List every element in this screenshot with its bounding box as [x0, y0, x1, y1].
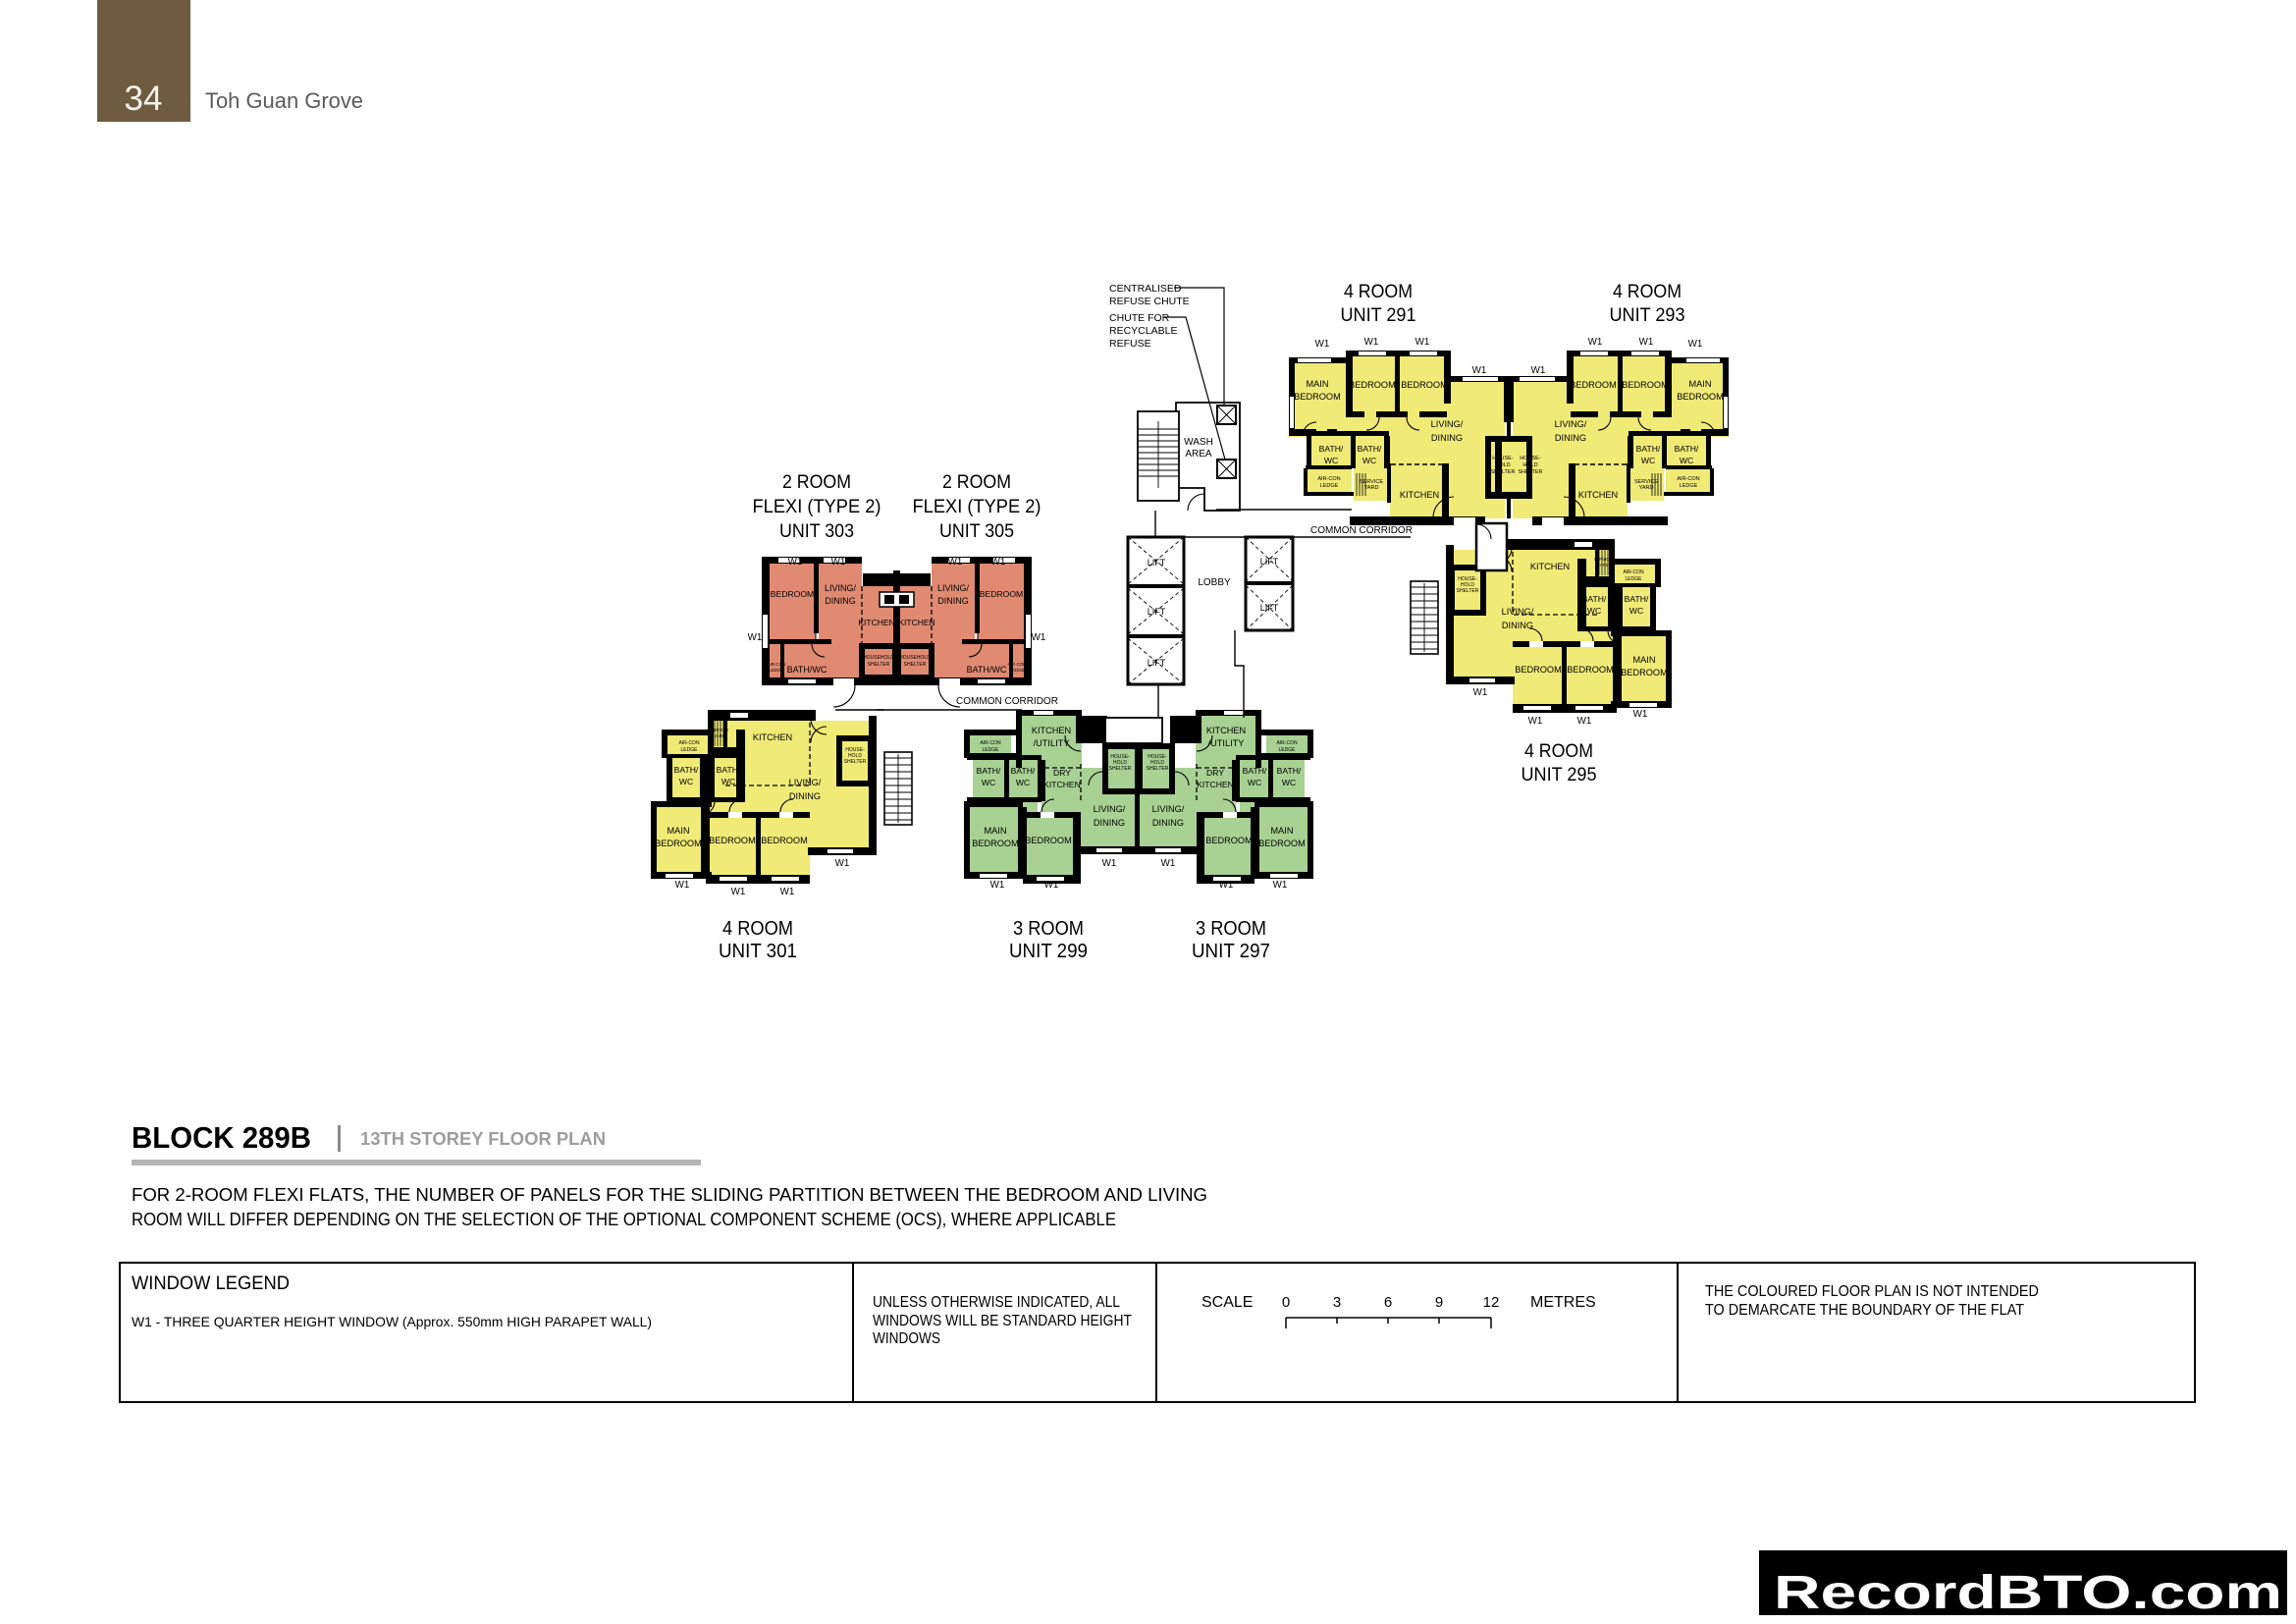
svg-text:W1: W1: [1472, 365, 1487, 376]
svg-text:KITCHEN: KITCHEN: [1206, 726, 1246, 735]
svg-text:BATH/: BATH/: [1358, 444, 1382, 454]
svg-text:6: 6: [1384, 1294, 1392, 1311]
svg-text:4 ROOM: 4 ROOM: [722, 918, 793, 940]
svg-text:2 ROOM: 2 ROOM: [942, 472, 1011, 493]
svg-text:LEDGE: LEDGE: [1626, 576, 1643, 582]
svg-text:13TH STOREY FLOOR PLAN: 13TH STOREY FLOOR PLAN: [360, 1129, 606, 1149]
svg-text:/UTILITY: /UTILITY: [1034, 738, 1070, 748]
svg-text:BEDROOM: BEDROOM: [1025, 836, 1071, 845]
svg-text:UNIT 295: UNIT 295: [1522, 765, 1597, 785]
svg-text:W1: W1: [1315, 339, 1330, 350]
svg-text:W1: W1: [1633, 709, 1648, 720]
svg-text:4 ROOM: 4 ROOM: [1613, 282, 1682, 302]
svg-text:BEDROOM: BEDROOM: [980, 589, 1023, 599]
svg-text:LIFT: LIFT: [1148, 607, 1166, 617]
svg-text:W1: W1: [1688, 339, 1703, 350]
svg-text:UNIT 301: UNIT 301: [719, 941, 797, 962]
svg-text:WC: WC: [679, 777, 693, 786]
svg-text:W1: W1: [1044, 880, 1059, 891]
svg-text:DINING: DINING: [1431, 433, 1463, 443]
svg-text:KITCHEN: KITCHEN: [1578, 490, 1618, 500]
svg-text:UNIT 293: UNIT 293: [1610, 305, 1685, 326]
svg-text:W1 - THREE QUARTER HEIGHT WIND: W1 - THREE QUARTER HEIGHT WINDOW (Approx…: [132, 1314, 652, 1329]
svg-text:REFUSE CHUTE: REFUSE CHUTE: [1109, 296, 1190, 307]
svg-text:BEDROOM: BEDROOM: [1401, 380, 1447, 390]
svg-text:ROOM WILL DIFFER DEPENDING ON: ROOM WILL DIFFER DEPENDING ON THE SELECT…: [132, 1209, 1116, 1229]
svg-text:W1: W1: [675, 880, 690, 891]
svg-text:LOBBY: LOBBY: [1198, 577, 1231, 588]
svg-text:WC: WC: [1282, 778, 1296, 787]
svg-text:MAIN: MAIN: [1307, 379, 1329, 389]
svg-text:LEDGE: LEDGE: [1680, 483, 1698, 489]
svg-text:DINING: DINING: [825, 596, 856, 606]
svg-text:BATH/: BATH/: [1243, 766, 1267, 776]
svg-text:AIR-CON: AIR-CON: [1677, 476, 1699, 482]
svg-text:W1: W1: [1161, 858, 1176, 869]
svg-text:W1: W1: [1531, 365, 1546, 376]
svg-text:BEDROOM: BEDROOM: [1570, 380, 1616, 390]
svg-text:DINING: DINING: [937, 596, 969, 606]
svg-text:W1: W1: [1219, 880, 1234, 891]
svg-text:W1: W1: [1577, 716, 1592, 727]
svg-text:UNLESS OTHERWISE INDICATED, AL: UNLESS OTHERWISE INDICATED, ALL: [873, 1294, 1120, 1311]
svg-text:LIFT: LIFT: [1148, 658, 1166, 668]
svg-text:TO DEMARCATE THE BOUNDARY OF T: TO DEMARCATE THE BOUNDARY OF THE FLAT: [1705, 1302, 2024, 1319]
svg-text:W1: W1: [1588, 337, 1603, 348]
svg-text:AIR-CON: AIR-CON: [1317, 476, 1340, 482]
svg-text:DINING: DINING: [789, 791, 821, 801]
svg-text:W1: W1: [948, 557, 963, 568]
svg-text:AIR-CON: AIR-CON: [1623, 569, 1644, 575]
svg-text:SHELTER: SHELTER: [1457, 588, 1479, 594]
svg-text:SCALE: SCALE: [1201, 1294, 1253, 1311]
svg-text:LIVING/: LIVING/: [1152, 804, 1185, 814]
svg-text:CHUTE FOR: CHUTE FOR: [1109, 312, 1170, 324]
svg-text:MAIN: MAIN: [1689, 379, 1712, 389]
svg-text:KITCHEN: KITCHEN: [1530, 562, 1570, 571]
svg-text:SHELTER: SHELTER: [904, 662, 927, 668]
svg-text:LIVING/: LIVING/: [937, 583, 970, 593]
svg-text:BEDROOM: BEDROOM: [1258, 839, 1305, 848]
svg-text:MAIN: MAIN: [1271, 826, 1294, 836]
svg-text:34: 34: [125, 80, 163, 118]
svg-text:SHELTER: SHELTER: [1519, 469, 1543, 475]
svg-text:W1: W1: [835, 858, 850, 869]
svg-text:LEDGE: LEDGE: [983, 747, 1000, 753]
svg-text:BEDROOM: BEDROOM: [1621, 668, 1667, 677]
svg-text:MAIN: MAIN: [1633, 655, 1656, 665]
svg-text:BLOCK 289B: BLOCK 289B: [132, 1120, 311, 1155]
svg-text:HOLD: HOLD: [1495, 462, 1510, 468]
svg-text:Toh Guan Grove: Toh Guan Grove: [205, 88, 363, 113]
svg-text:4 ROOM: 4 ROOM: [1344, 282, 1413, 302]
svg-text:BEDROOM: BEDROOM: [972, 839, 1018, 848]
svg-text:BATH/: BATH/: [1675, 444, 1699, 454]
svg-text:BEDROOM: BEDROOM: [1294, 392, 1340, 402]
svg-text:HOUSEHOLD: HOUSEHOLD: [899, 655, 931, 661]
svg-text:LIFT: LIFT: [1260, 557, 1279, 567]
svg-text:REFUSE: REFUSE: [1109, 338, 1151, 350]
svg-text:2 ROOM: 2 ROOM: [782, 472, 851, 493]
svg-text:DINING: DINING: [1502, 621, 1533, 630]
svg-text:3 ROOM: 3 ROOM: [1196, 918, 1266, 940]
svg-text:W1: W1: [831, 557, 846, 568]
svg-text:LEDGE: LEDGE: [1009, 668, 1024, 673]
svg-text:BEDROOM: BEDROOM: [761, 836, 807, 845]
svg-text:BEDROOM: BEDROOM: [771, 589, 814, 599]
svg-text:UNIT 299: UNIT 299: [1009, 941, 1088, 962]
svg-text:HOLD: HOLD: [1522, 462, 1537, 468]
svg-text:LEDGE: LEDGE: [769, 668, 783, 673]
svg-text:SHELTER: SHELTER: [1147, 766, 1169, 772]
svg-text:WC: WC: [721, 777, 735, 786]
svg-text:BATH/: BATH/: [674, 765, 699, 775]
svg-text:W1: W1: [1364, 337, 1379, 348]
svg-text:0: 0: [1282, 1294, 1290, 1311]
svg-text:RecordBTO.com: RecordBTO.com: [1774, 1567, 2282, 1619]
svg-text:W1: W1: [1102, 858, 1117, 869]
svg-text:LEDGE: LEDGE: [1279, 747, 1297, 753]
svg-text:4 ROOM: 4 ROOM: [1524, 741, 1593, 762]
svg-text:W1: W1: [780, 887, 795, 897]
svg-text:KITCHEN: KITCHEN: [1043, 780, 1081, 789]
svg-text:WC: WC: [1324, 456, 1338, 465]
svg-text:W1: W1: [1639, 337, 1654, 348]
svg-text:W1: W1: [748, 632, 763, 643]
svg-text:BATH/: BATH/: [1011, 766, 1036, 776]
svg-text:WC: WC: [1362, 456, 1376, 465]
svg-text:W1: W1: [1415, 337, 1430, 348]
svg-text:AIR-CON: AIR-CON: [980, 740, 1001, 746]
svg-text:FLEXI (TYPE 2): FLEXI (TYPE 2): [753, 497, 881, 517]
svg-text:UNIT 303: UNIT 303: [779, 521, 854, 542]
svg-text:YARD: YARD: [1364, 485, 1379, 491]
svg-text:LIVING/: LIVING/: [1555, 419, 1587, 429]
svg-text:FLEXI (TYPE 2): FLEXI (TYPE 2): [913, 497, 1041, 517]
svg-text:BATH/: BATH/: [1582, 594, 1607, 604]
svg-text:BATH/: BATH/: [1319, 444, 1344, 454]
svg-text:W1: W1: [1528, 716, 1543, 727]
svg-text:CENTRALISED: CENTRALISED: [1109, 283, 1182, 295]
svg-text:BATH/: BATH/: [717, 765, 741, 775]
svg-text:LIVING/: LIVING/: [789, 778, 822, 787]
svg-text:DRY: DRY: [1053, 768, 1071, 778]
svg-text:DINING: DINING: [1094, 818, 1125, 828]
svg-text:WC: WC: [1641, 456, 1655, 465]
svg-text:YARD: YARD: [1597, 563, 1608, 568]
svg-text:DRY: DRY: [1206, 768, 1224, 778]
svg-text:W1: W1: [731, 887, 746, 897]
svg-text:WINDOWS WILL BE STANDARD HEIGH: WINDOWS WILL BE STANDARD HEIGHT: [873, 1313, 1132, 1329]
svg-text:BEDROOM: BEDROOM: [1515, 665, 1561, 675]
svg-text:LIFT: LIFT: [1260, 603, 1279, 613]
svg-text:COMMON CORRIDOR: COMMON CORRIDOR: [956, 696, 1058, 707]
svg-text:BEDROOM: BEDROOM: [1622, 380, 1668, 390]
svg-text:BEDROOM: BEDROOM: [1205, 836, 1252, 845]
svg-text:UNIT 291: UNIT 291: [1341, 305, 1416, 326]
svg-text:RECYCLABLE: RECYCLABLE: [1109, 325, 1177, 337]
svg-text:LIVING/: LIVING/: [1431, 419, 1464, 429]
svg-text:WC: WC: [1587, 606, 1601, 616]
svg-text:METRES: METRES: [1530, 1294, 1596, 1311]
svg-text:AIR-CON: AIR-CON: [678, 740, 700, 746]
svg-text:SHELTER: SHELTER: [868, 662, 890, 668]
svg-text:9: 9: [1435, 1294, 1443, 1311]
svg-text:YARD: YARD: [1639, 485, 1654, 491]
svg-text:W1: W1: [990, 880, 1005, 891]
svg-text:LEDGE: LEDGE: [681, 747, 699, 753]
svg-text:LEDGE: LEDGE: [1320, 483, 1339, 489]
svg-text:BATH/: BATH/: [1277, 766, 1302, 776]
svg-text:3 ROOM: 3 ROOM: [1013, 918, 1084, 940]
svg-text:WINDOWS: WINDOWS: [873, 1330, 940, 1347]
svg-text:LIVING/: LIVING/: [1502, 607, 1534, 617]
svg-text:LIVING/: LIVING/: [1094, 804, 1126, 814]
svg-text:YARD: YARD: [714, 733, 724, 738]
svg-text:3: 3: [1333, 1294, 1341, 1311]
svg-text:SHELTER: SHELTER: [1109, 766, 1132, 772]
svg-text:MAIN: MAIN: [985, 826, 1007, 836]
svg-text:WINDOW LEGEND: WINDOW LEGEND: [132, 1272, 290, 1294]
svg-text:WASH: WASH: [1184, 437, 1213, 448]
svg-text:W1: W1: [1273, 880, 1288, 891]
svg-text:BEDROOM: BEDROOM: [655, 839, 701, 848]
svg-text:LIFT: LIFT: [1148, 558, 1166, 568]
svg-text:HOUSE-: HOUSE-: [1520, 456, 1541, 461]
svg-text:DINING: DINING: [1152, 818, 1184, 828]
svg-text:HOUSEHOLD: HOUSEHOLD: [863, 655, 894, 661]
svg-text:BEDROOM: BEDROOM: [709, 836, 755, 845]
svg-text:W1: W1: [788, 557, 803, 568]
svg-text:SERVICE: SERVICE: [711, 728, 729, 732]
svg-text:DINING: DINING: [1555, 433, 1586, 443]
svg-text:W1: W1: [1473, 687, 1488, 698]
svg-text:FOR 2-ROOM FLEXI FLATS, THE NU: FOR 2-ROOM FLEXI FLATS, THE NUMBER OF PA…: [132, 1184, 1207, 1205]
svg-text:WC: WC: [982, 778, 995, 787]
svg-text:12: 12: [1483, 1294, 1500, 1311]
svg-text:BEDROOM: BEDROOM: [1567, 665, 1613, 675]
svg-text:LIVING/: LIVING/: [825, 583, 857, 593]
svg-text:/UTILITY: /UTILITY: [1208, 738, 1245, 748]
svg-text:COMMON CORRIDOR: COMMON CORRIDOR: [1310, 525, 1413, 536]
svg-text:BEDROOM: BEDROOM: [1677, 392, 1723, 402]
svg-text:AREA: AREA: [1185, 449, 1212, 460]
svg-text:KITCHEN: KITCHEN: [1032, 726, 1071, 735]
svg-text:AIR-CON: AIR-CON: [768, 662, 786, 667]
svg-text:WC: WC: [1680, 456, 1693, 465]
svg-text:BEDROOM: BEDROOM: [1349, 380, 1395, 390]
svg-text:KITCHEN: KITCHEN: [858, 618, 894, 627]
svg-text:AIR-CON: AIR-CON: [1276, 740, 1298, 746]
svg-text:WC: WC: [1016, 778, 1030, 787]
svg-text:KITCHEN: KITCHEN: [753, 732, 792, 742]
svg-text:SHELTER: SHELTER: [844, 759, 867, 765]
svg-text:BATH/: BATH/: [977, 766, 1001, 776]
svg-text:BATH/WC: BATH/WC: [967, 665, 1007, 675]
svg-text:AIR-CON: AIR-CON: [1008, 662, 1027, 667]
svg-text:W1: W1: [1032, 632, 1046, 643]
svg-text:W1: W1: [991, 557, 1006, 568]
svg-text:KITCHEN: KITCHEN: [1400, 490, 1439, 500]
svg-text:WC: WC: [1248, 778, 1261, 787]
svg-text:WC: WC: [1629, 606, 1643, 616]
svg-text:SHELTER: SHELTER: [1491, 469, 1516, 475]
svg-text:HOUSE-: HOUSE-: [1492, 456, 1514, 461]
svg-text:BATH/WC: BATH/WC: [787, 665, 828, 675]
svg-text:BATH/: BATH/: [1636, 444, 1661, 454]
svg-text:KITCHEN: KITCHEN: [898, 618, 934, 627]
svg-text:MAIN: MAIN: [667, 826, 690, 836]
svg-text:BATH/: BATH/: [1625, 594, 1649, 604]
svg-text:UNIT 305: UNIT 305: [939, 521, 1014, 542]
svg-text:UNIT 297: UNIT 297: [1192, 941, 1270, 962]
svg-text:THE COLOURED FLOOR PLAN IS NOT: THE COLOURED FLOOR PLAN IS NOT INTENDED: [1705, 1283, 2039, 1300]
svg-text:SERVICE: SERVICE: [1594, 557, 1613, 562]
svg-text:KITCHEN: KITCHEN: [1197, 780, 1234, 789]
